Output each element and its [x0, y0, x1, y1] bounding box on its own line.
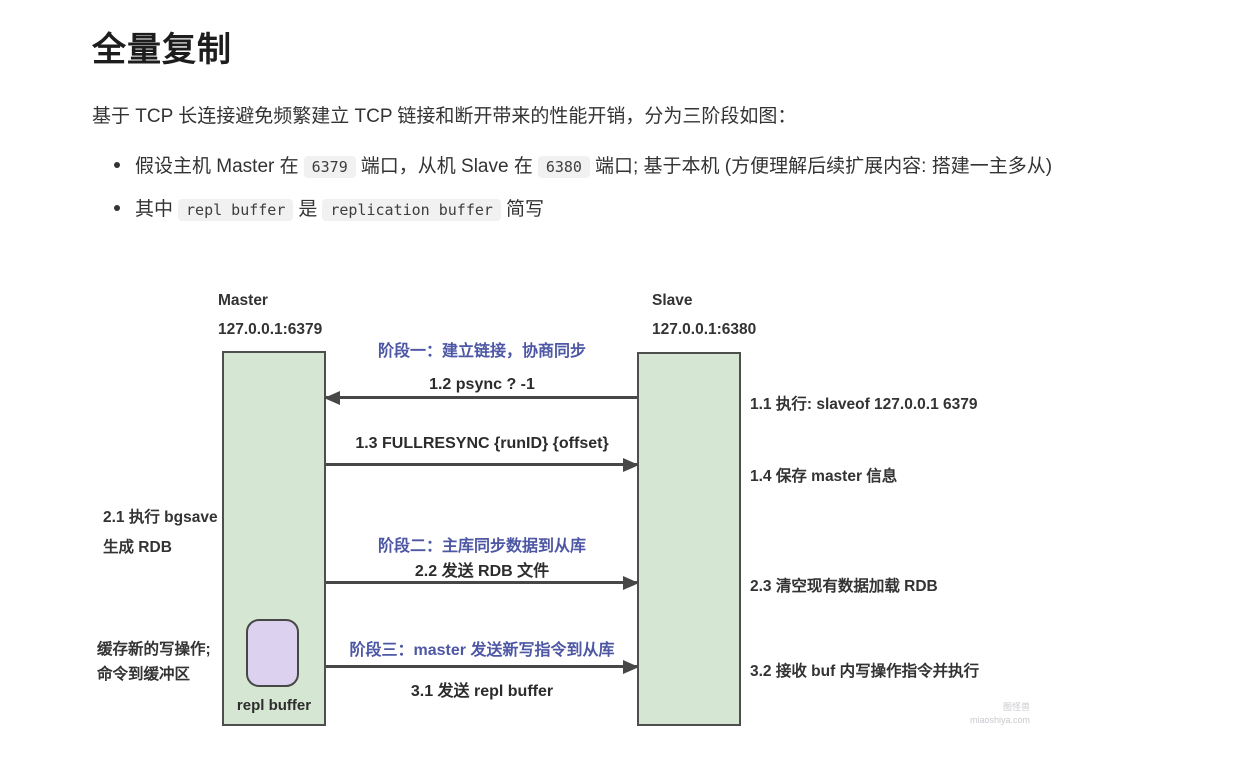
- text-run: 简写: [506, 199, 544, 220]
- inline-code: replication buffer: [322, 199, 501, 221]
- note-bgsave-line-1: 2.1 执行 bgsave: [103, 505, 218, 527]
- phase-2-label: 阶段二：主库同步数据到从库: [326, 532, 638, 556]
- note-save-master-info: 1.4 保存 master 信息: [750, 464, 897, 486]
- arrow-head-right-icon: [623, 458, 639, 472]
- bullet-text: 其中repl buffer是replication buffer简写: [135, 194, 544, 221]
- note-cache-line-2: 命令到缓冲区: [97, 662, 190, 684]
- message-4-arrow: [326, 665, 637, 668]
- slave-node-address: 127.0.0.1:6380: [652, 321, 756, 339]
- message-1-arrow: [326, 396, 637, 399]
- note-bgsave-line-2: 生成 RDB: [103, 535, 172, 557]
- arrow-head-left-icon: [324, 391, 340, 405]
- note-cache-line-1: 缓存新的写操作;: [97, 637, 211, 659]
- note-exec-buf: 3.2 接收 buf 内写操作指令并执行: [750, 659, 979, 681]
- master-node-title: Master: [218, 292, 268, 310]
- phase-3-label: 阶段三：master 发送新写指令到从库: [326, 636, 638, 660]
- repl-buffer-label: repl buffer: [222, 697, 326, 714]
- arrow-head-right-icon: [623, 660, 639, 674]
- text-run: 其中: [135, 199, 173, 220]
- message-3-label: 2.2 发送 RDB 文件: [326, 557, 638, 581]
- intro-paragraph: 基于 TCP 长连接避免频繁建立 TCP 链接和断开带来的性能开销，分为三阶段如…: [92, 101, 796, 128]
- text-run: 端口，从机 Slave 在: [361, 156, 533, 177]
- watermark-line-1: 图怪兽: [928, 701, 1030, 714]
- message-4-label: 3.1 发送 repl buffer: [326, 677, 638, 701]
- document-page: 全量复制 基于 TCP 长连接避免频繁建立 TCP 链接和断开带来的性能开销，分…: [0, 0, 1251, 776]
- text-run: 是: [298, 199, 317, 220]
- master-node-address: 127.0.0.1:6379: [218, 321, 322, 339]
- watermark: 图怪兽 miaoshiya.com: [928, 701, 1030, 727]
- message-2-label: 1.3 FULLRESYNC {runID} {offset}: [326, 435, 638, 453]
- inline-code: 6380: [538, 156, 590, 178]
- note-slaveof: 1.1 执行: slaveof 127.0.0.1 6379: [750, 392, 977, 414]
- note-load-rdb: 2.3 清空现有数据加载 RDB: [750, 574, 938, 596]
- bullet-dot: [114, 205, 120, 211]
- arrow-head-right-icon: [623, 576, 639, 590]
- message-3-arrow: [326, 581, 637, 584]
- inline-code: repl buffer: [178, 199, 293, 221]
- watermark-line-2: miaoshiya.com: [928, 714, 1030, 727]
- phase-1-label: 阶段一：建立链接，协商同步: [326, 337, 638, 361]
- text-run: 假设主机 Master 在: [135, 156, 299, 177]
- message-2-arrow: [326, 463, 637, 466]
- slave-lifeline-box: [637, 352, 741, 726]
- bullet-dot: [114, 162, 120, 168]
- list-item: 假设主机 Master 在6379端口，从机 Slave 在6380端口; 基于…: [114, 151, 1052, 178]
- inline-code: 6379: [304, 156, 356, 178]
- message-1-label: 1.2 psync ? -1: [326, 376, 638, 394]
- page-title: 全量复制: [92, 22, 232, 71]
- bullet-text: 假设主机 Master 在6379端口，从机 Slave 在6380端口; 基于…: [135, 151, 1052, 178]
- text-run: 端口; 基于本机 (方便理解后续扩展内容: 搭建一主多从): [595, 156, 1052, 177]
- list-item: 其中repl buffer是replication buffer简写: [114, 194, 544, 221]
- repl-buffer-box: [246, 619, 299, 687]
- slave-node-title: Slave: [652, 292, 693, 310]
